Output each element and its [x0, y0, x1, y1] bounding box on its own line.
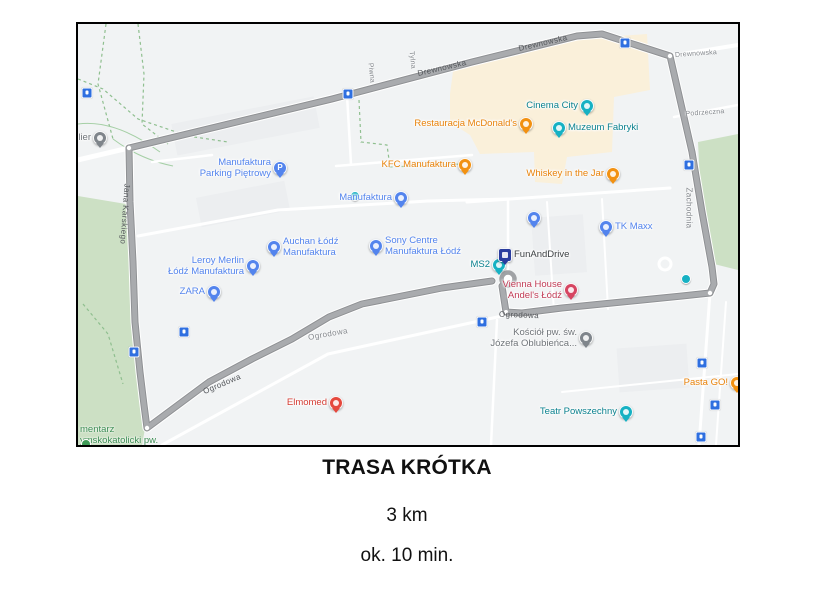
marker-funanddrive[interactable]	[498, 248, 512, 262]
transit-stop-icon[interactable]	[710, 400, 721, 411]
marker-poi-dot-east[interactable]	[681, 274, 691, 284]
transit-stop-icon[interactable]	[82, 88, 93, 99]
marker-auchan-lodz-manufaktura[interactable]	[267, 240, 281, 254]
marker-atelier[interactable]	[93, 131, 107, 145]
marker-label-leroy-merlin-lodz-manufaktura: Leroy MerlinŁódź Manufaktura	[168, 256, 244, 277]
marker-label-vienna-house-andels-lodz: Vienna HouseAndel's Łódź	[502, 280, 562, 301]
marker-vienna-house-andels-lodz[interactable]	[564, 283, 578, 297]
street-label-zachodnia: Zachodnia	[685, 188, 694, 229]
marker-kosciol-sw-jozefa[interactable]	[579, 331, 593, 345]
street-label-drewnowska: Drewnowska	[417, 58, 468, 78]
marker-label-kosciol-sw-jozefa: Kościół pw. św.Józefa Oblubieńca...	[490, 328, 577, 349]
transit-stop-icon[interactable]	[697, 358, 708, 369]
marker-label-zara: ZARA	[180, 287, 205, 298]
marker-zara[interactable]	[207, 285, 221, 299]
marker-label-muzeum-fabryki: Muzeum Fabryki	[568, 123, 638, 134]
marker-label-manufaktura: Manufaktura	[339, 193, 392, 204]
street-label-podrzeczna: Podrzeczna	[685, 108, 724, 118]
street-label-ogrodowa: Ogrodowa	[307, 326, 348, 342]
marker-kfc-manufaktura[interactable]	[458, 158, 472, 172]
transit-stop-icon[interactable]	[343, 89, 354, 100]
route-distance: 3 km	[76, 505, 738, 527]
marker-label-sony-centre-manufaktura-lodz: Sony CentreManufaktura Łódź	[385, 236, 461, 257]
area-label-cmentarz-rzymskokatolicki: mentarzymskokatolicki pw.	[80, 425, 158, 446]
marker-sony-centre-manufaktura-lodz[interactable]	[369, 239, 383, 253]
marker-leroy-merlin-lodz-manufaktura[interactable]	[246, 259, 260, 273]
marker-restauracja-mcdonalds[interactable]	[519, 117, 533, 131]
street-label-ogrodowa: Ogrodowa	[499, 310, 539, 320]
marker-cemetery-dot[interactable]	[81, 439, 91, 447]
marker-label-elmomed: Elmomed	[287, 398, 327, 409]
marker-label-kfc-manufaktura: KFC Manufaktura	[382, 160, 456, 171]
marker-teatr-powszechny[interactable]	[619, 405, 633, 419]
transit-stop-icon[interactable]	[129, 347, 140, 358]
marker-label-atelier: Atelier	[76, 133, 91, 144]
marker-whiskey-in-the-jar[interactable]	[606, 167, 620, 181]
street-label-jana karskiego: Jana Karskiego	[118, 183, 131, 244]
street-label-ogrodowa: Ogrodowa	[202, 372, 242, 396]
marker-manufaktura-parking-pietrowy[interactable]: P	[273, 161, 287, 175]
marker-label-cinema-city: Cinema City	[526, 101, 578, 112]
street-label-drewnowska: Drewnowska	[675, 49, 717, 59]
transit-stop-icon[interactable]	[477, 317, 488, 328]
marker-cinema-city[interactable]	[580, 99, 594, 113]
marker-label-teatr-powszechny: Teatr Powszechny	[540, 407, 617, 418]
marker-tk-maxx[interactable]	[599, 220, 613, 234]
marker-label-auchan-lodz-manufaktura: Auchan ŁódźManufaktura	[283, 237, 338, 258]
map-overlay-layer: AtelierPManufakturaParking PiętrowyCinem…	[78, 24, 738, 445]
route-duration: ok. 10 min.	[76, 545, 738, 567]
marker-pasta-go[interactable]	[730, 376, 740, 390]
transit-stop-icon[interactable]	[696, 432, 707, 443]
marker-label-restauracja-mcdonalds: Restauracja McDonald's	[414, 119, 517, 130]
transit-stop-icon[interactable]	[179, 327, 190, 338]
marker-unlabeled-shop[interactable]	[527, 211, 541, 225]
route-map: AtelierPManufakturaParking PiętrowyCinem…	[76, 22, 740, 447]
transit-stop-icon[interactable]	[620, 38, 631, 49]
marker-manufaktura[interactable]	[394, 191, 408, 205]
street-label-drewnowska: Drewnowska	[518, 33, 569, 53]
marker-label-ms2: MS2	[470, 260, 490, 271]
marker-label-manufaktura-parking-pietrowy: ManufakturaParking Piętrowy	[200, 158, 271, 179]
marker-label-tk-maxx: TK Maxx	[615, 222, 652, 233]
marker-label-whiskey-in-the-jar: Whiskey in the Jar	[526, 169, 604, 180]
street-label-piwna: Piwna	[366, 63, 375, 84]
marker-elmomed[interactable]	[329, 396, 343, 410]
route-title: TRASA KRÓTKA	[76, 456, 738, 480]
marker-muzeum-fabryki[interactable]	[552, 121, 566, 135]
marker-label-pasta-go: Pasta GO!	[684, 378, 728, 389]
transit-stop-icon[interactable]	[684, 160, 695, 171]
marker-label-funanddrive: FunAndDrive	[514, 250, 569, 261]
street-label-tylna: Tylna	[408, 51, 417, 69]
